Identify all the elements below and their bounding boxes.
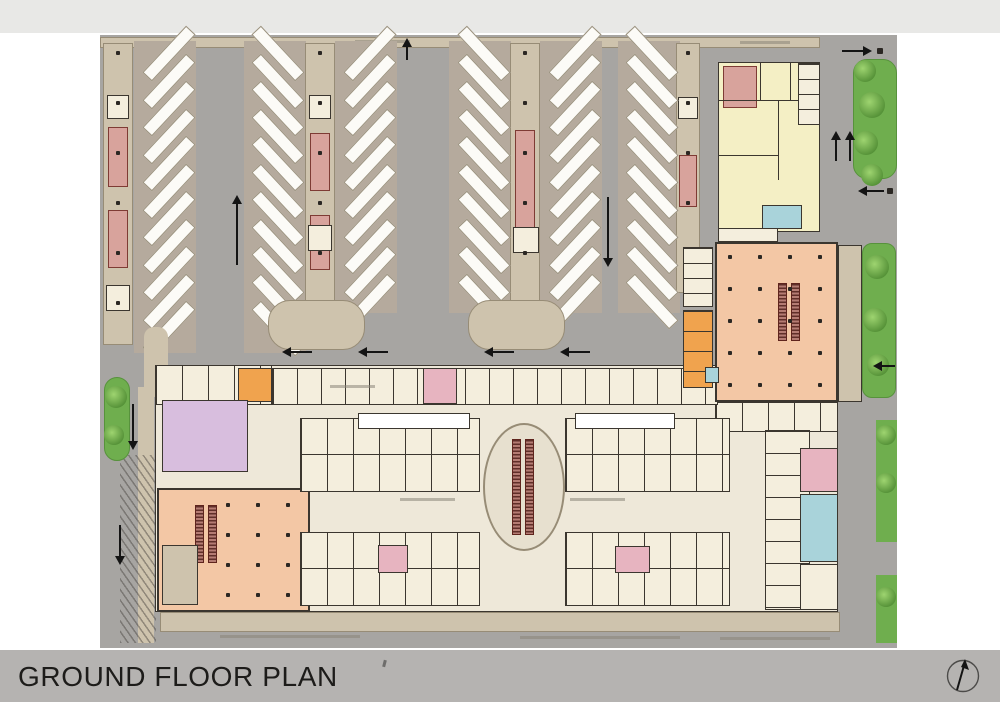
escalator (791, 283, 800, 341)
column-grid (818, 287, 822, 291)
microtext (570, 498, 625, 501)
column-grid (286, 503, 290, 507)
island-tree-dots (116, 201, 120, 205)
band-midline (565, 454, 730, 455)
microtext (720, 637, 830, 640)
traffic-arrow-left-shaft (492, 351, 514, 353)
wall-line (790, 62, 791, 100)
column-grid (758, 383, 762, 387)
tree (863, 308, 887, 332)
column-grid (226, 593, 230, 597)
island-tree-dots (318, 101, 322, 105)
microtext (400, 498, 455, 501)
traffic-arrow-left-shaft (568, 351, 590, 353)
column-grid (818, 383, 822, 387)
traffic-arrow-left-head (484, 347, 493, 357)
column-grid (728, 255, 732, 259)
kiosk-band (575, 413, 675, 429)
column-grid (286, 533, 290, 537)
planting-strip (876, 575, 897, 643)
shop-band-upper-east (565, 418, 730, 492)
traffic-arrow-up-head (845, 131, 855, 140)
traffic-arrow-down-head (603, 258, 613, 267)
ramp-structure (679, 155, 697, 207)
traffic-arrow-left-shaft (881, 365, 895, 367)
escalator (525, 439, 534, 535)
arrow-dot (877, 48, 883, 54)
bottom-walkway (160, 612, 840, 632)
tree (105, 386, 127, 408)
column-grid (788, 287, 792, 291)
shop-row-east-wing (715, 402, 838, 432)
column-grid (788, 319, 792, 323)
island-tree-dots (686, 101, 690, 105)
traffic-arrow-down-shaft (607, 197, 609, 259)
tree (865, 255, 889, 279)
title-bar: GROUND FLOOR PLAN (0, 650, 1000, 702)
traffic-arrow-up-head (831, 131, 841, 140)
stair-room (423, 368, 457, 404)
column-grid (728, 383, 732, 387)
column-grid (256, 593, 260, 597)
arrow-dot (887, 188, 893, 194)
island-tree-dots (523, 51, 527, 55)
microtext (740, 41, 790, 44)
island-kiosk (106, 285, 130, 311)
island-tree-dots (318, 251, 322, 255)
traffic-arrow-right-shaft (842, 50, 864, 52)
column-grid (818, 351, 822, 355)
ramp-structure (723, 66, 757, 108)
stair-room (378, 545, 408, 573)
column-grid (788, 383, 792, 387)
island-kiosk (513, 227, 539, 253)
traffic-arrow-left-head (282, 347, 291, 357)
traffic-arrow-up-shaft (236, 203, 238, 265)
stair-room (800, 448, 838, 492)
room (800, 564, 838, 610)
island-kiosk (309, 95, 331, 119)
island-tree-dots (318, 201, 322, 205)
blue-zone-room (800, 494, 838, 562)
island-tree-dots (116, 251, 120, 255)
blue-zone-room (705, 367, 719, 383)
tree (876, 587, 896, 607)
column-grid (758, 287, 762, 291)
island-tree-dots (116, 151, 120, 155)
island-tree-dots (318, 151, 322, 155)
traffic-arrow-down-shaft (119, 525, 121, 557)
stair-room (615, 546, 650, 573)
traffic-arrow-left-shaft (290, 351, 312, 353)
floor-plan-drawing (100, 35, 897, 648)
dock-rooms (718, 228, 778, 242)
traffic-arrow-left-head (858, 186, 867, 196)
multipurpose-hall (162, 400, 248, 472)
kiosk-band (358, 413, 470, 429)
crosswalk-hatch (120, 455, 156, 643)
island-tree-dots (686, 201, 690, 205)
north-arrow-compass (940, 653, 986, 699)
traffic-arrow-right-head (863, 46, 872, 56)
column-grid (728, 319, 732, 323)
island-kiosk (107, 95, 129, 119)
escalator (208, 505, 217, 563)
column-grid (226, 503, 230, 507)
tree (859, 92, 885, 118)
column-grid (286, 593, 290, 597)
traffic-arrow-left-shaft (866, 190, 884, 192)
column-grid (758, 319, 762, 323)
island-tree-dots (318, 51, 322, 55)
island-tree-dots (686, 51, 690, 55)
dropoff-curb-island (468, 300, 565, 350)
shop-band-upper-west (300, 418, 480, 492)
island-tree-dots (116, 51, 120, 55)
column-grid (758, 351, 762, 355)
traffic-arrow-down-head (128, 441, 138, 450)
stray-mark (382, 660, 387, 668)
island-tree-dots (116, 301, 120, 305)
column-grid (256, 533, 260, 537)
tree (854, 60, 876, 82)
column-grid (226, 563, 230, 567)
stair-core (162, 545, 198, 605)
top-margin-strip (0, 0, 1000, 33)
tree (104, 425, 124, 445)
traffic-arrow-up-shaft (849, 139, 851, 161)
wall-line (778, 100, 779, 180)
traffic-arrow-left-shaft (366, 351, 388, 353)
ramp-structure (310, 133, 330, 191)
traffic-arrow-up-shaft (406, 46, 408, 60)
tree (854, 131, 878, 155)
column-grid (226, 533, 230, 537)
column-grid (728, 287, 732, 291)
blue-zone-room (762, 205, 802, 229)
traffic-arrow-left-head (873, 361, 882, 371)
traffic-arrow-up-head (232, 195, 242, 204)
island-kiosk (308, 225, 332, 251)
tree (861, 164, 883, 186)
tree (876, 473, 896, 493)
service-rooms (798, 63, 820, 125)
service-rooms (683, 247, 713, 307)
microtext (520, 636, 680, 639)
central-atrium-oval (483, 423, 565, 551)
island-tree-dots (116, 101, 120, 105)
microtext (330, 385, 375, 388)
ramp-structure (108, 127, 128, 187)
column-grid (818, 319, 822, 323)
microtext (220, 635, 360, 638)
tree (876, 425, 896, 445)
island-tree-dots (523, 201, 527, 205)
column-grid (256, 563, 260, 567)
island-tree-dots (686, 151, 690, 155)
wall-line (760, 62, 761, 100)
dropoff-curb-island (268, 300, 365, 350)
ramp-structure (108, 210, 128, 268)
island-tree-dots (523, 151, 527, 155)
island-tree-dots (523, 251, 527, 255)
traffic-arrow-left-head (560, 347, 569, 357)
island-tree-dots (523, 101, 527, 105)
column-grid (728, 351, 732, 355)
escalator (512, 439, 521, 535)
traffic-arrow-down-head (115, 556, 125, 565)
orange-room (238, 368, 272, 402)
column-grid (286, 563, 290, 567)
column-grid (256, 503, 260, 507)
column-grid (818, 255, 822, 259)
drawing-title: GROUND FLOOR PLAN (18, 650, 338, 702)
loading-dock (838, 245, 862, 402)
traffic-arrow-down-shaft (132, 404, 134, 442)
traffic-arrow-up-shaft (835, 139, 837, 161)
column-grid (788, 351, 792, 355)
band-midline (300, 454, 480, 455)
escalator (778, 283, 787, 341)
column-grid (758, 255, 762, 259)
wall-line (718, 155, 778, 156)
column-grid (788, 255, 792, 259)
traffic-arrow-left-head (358, 347, 367, 357)
traffic-arrow-up-head (402, 38, 412, 47)
